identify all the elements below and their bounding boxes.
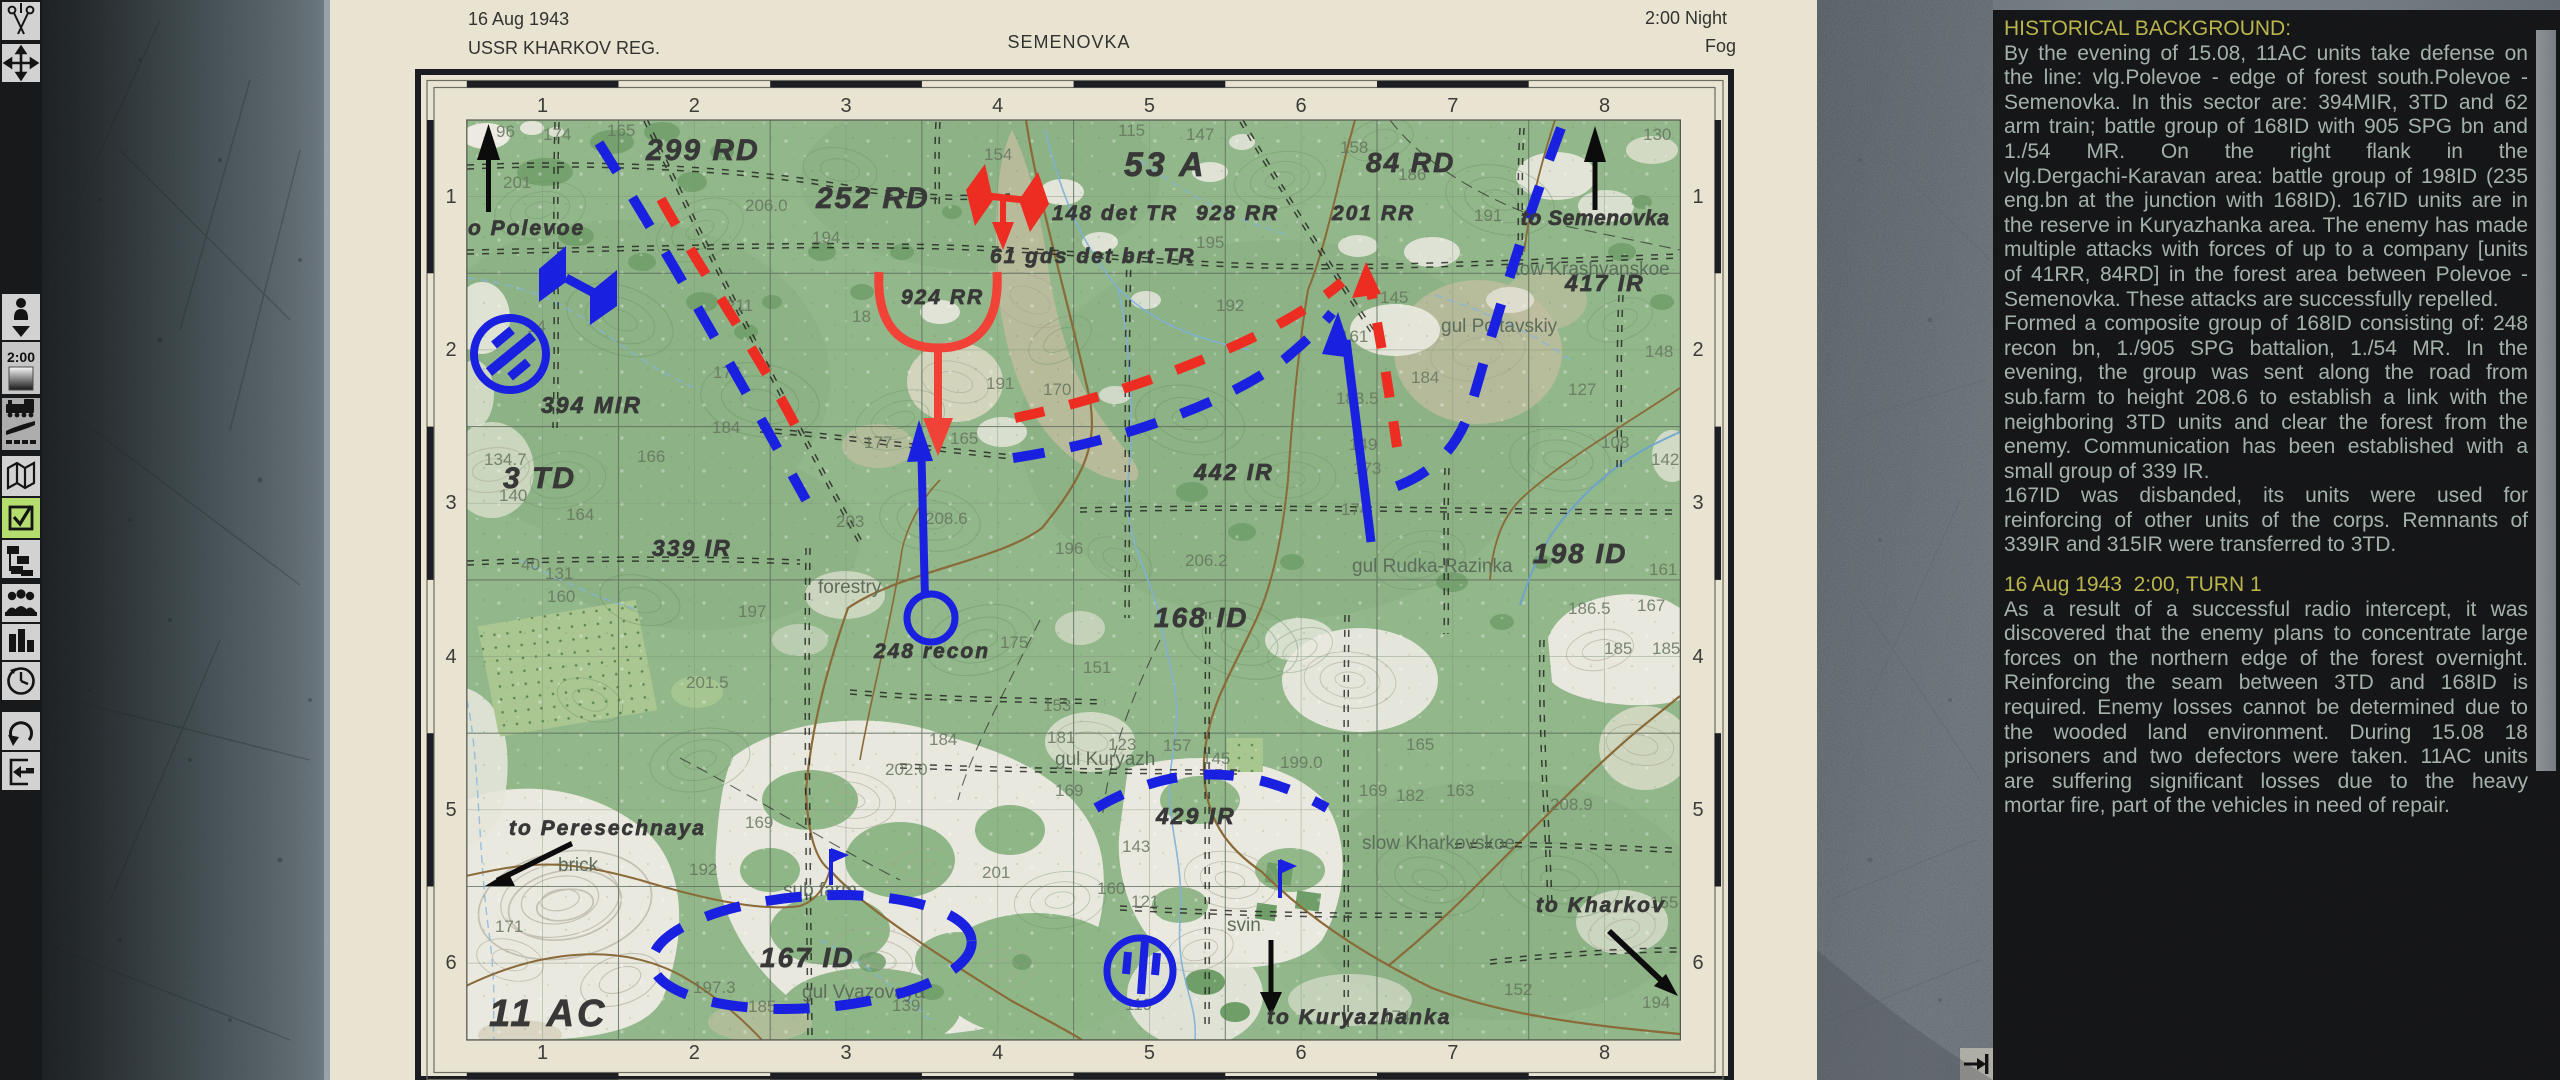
svg-text:2:00: 2:00: [7, 349, 35, 365]
